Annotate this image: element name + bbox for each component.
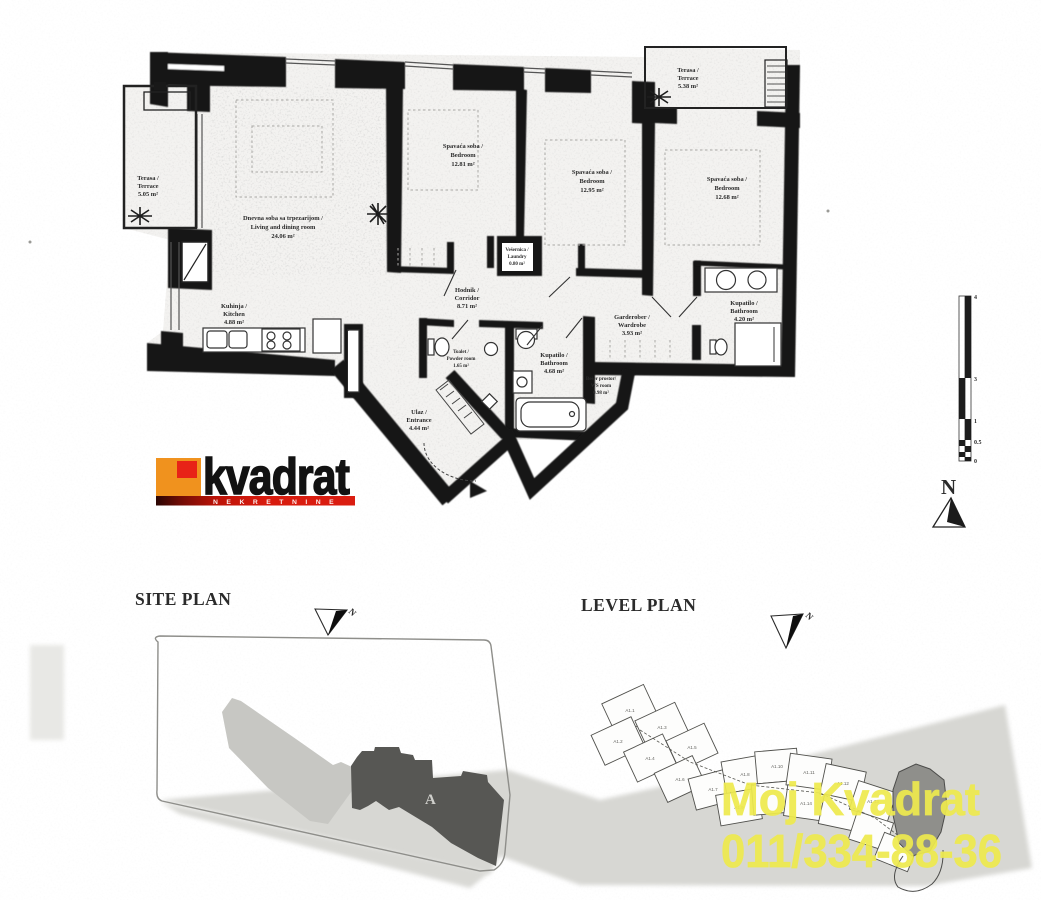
svg-text:Spavaća soba /: Spavaća soba / xyxy=(572,169,612,176)
svg-text:4.68 m²: 4.68 m² xyxy=(544,368,564,375)
svg-text:SITE PLAN: SITE PLAN xyxy=(135,589,231,609)
svg-text:Garderober /: Garderober / xyxy=(614,314,650,321)
svg-text:Ulaz /: Ulaz / xyxy=(411,409,427,416)
svg-text:Powder room: Powder room xyxy=(447,357,477,362)
svg-text:24.06 m²: 24.06 m² xyxy=(271,233,294,240)
svg-text:4.88 m²: 4.88 m² xyxy=(224,319,244,326)
svg-text:Kupatilo /: Kupatilo / xyxy=(730,300,758,307)
svg-text:4: 4 xyxy=(974,295,977,301)
svg-text:Corridor: Corridor xyxy=(455,295,480,302)
svg-text:N: N xyxy=(941,475,956,499)
svg-text:Spavaća soba /: Spavaća soba / xyxy=(707,176,747,183)
svg-text:12.68 m²: 12.68 m² xyxy=(715,194,738,201)
svg-text:5.05 m²: 5.05 m² xyxy=(138,191,158,198)
svg-text:A1.7: A1.7 xyxy=(708,787,718,792)
svg-text:A1.1: A1.1 xyxy=(625,708,635,713)
svg-text:A1.5: A1.5 xyxy=(687,745,697,750)
svg-text:Moj Kvadrat: Moj Kvadrat xyxy=(721,773,980,825)
svg-text:A1.2: A1.2 xyxy=(613,739,623,744)
svg-text:WS room: WS room xyxy=(591,384,612,389)
svg-text:Terrace: Terrace xyxy=(677,75,698,82)
svg-text:A1.6: A1.6 xyxy=(675,777,685,782)
svg-text:0.5: 0.5 xyxy=(974,440,982,446)
svg-text:Hodnik /: Hodnik / xyxy=(455,287,479,294)
svg-text:011/334-88-36: 011/334-88-36 xyxy=(721,825,1002,877)
svg-text:0.80 m²: 0.80 m² xyxy=(509,261,525,267)
svg-text:Kupatilo /: Kupatilo / xyxy=(540,352,568,359)
svg-text:Bedroom: Bedroom xyxy=(579,178,605,185)
svg-text:Kitchen: Kitchen xyxy=(223,311,245,318)
svg-text:Bedroom: Bedroom xyxy=(450,152,476,159)
svg-text:Laundry: Laundry xyxy=(508,255,527,260)
svg-text:Toalet /: Toalet / xyxy=(453,350,469,355)
svg-text:Bathroom: Bathroom xyxy=(730,308,758,315)
svg-text:A1.10: A1.10 xyxy=(771,764,783,769)
svg-text:Entrance: Entrance xyxy=(406,417,431,424)
svg-text:Living and dining room: Living and dining room xyxy=(251,224,316,231)
svg-text:Wardrobe: Wardrobe xyxy=(618,322,646,329)
svg-text:LEVEL PLAN: LEVEL PLAN xyxy=(581,595,696,615)
svg-text:5.38 m²: 5.38 m² xyxy=(678,83,698,90)
svg-text:Kuhinja /: Kuhinja / xyxy=(221,303,247,310)
svg-text:Terrace: Terrace xyxy=(137,183,158,190)
svg-text:12.95 m²: 12.95 m² xyxy=(580,187,603,194)
svg-text:1.65 m²: 1.65 m² xyxy=(453,363,469,369)
svg-text:Bathroom: Bathroom xyxy=(540,360,568,367)
svg-text:0.98 m²: 0.98 m² xyxy=(593,390,609,396)
svg-text:0: 0 xyxy=(974,459,977,465)
svg-text:8.71 m²: 8.71 m² xyxy=(457,303,477,310)
svg-text:3.93 m²: 3.93 m² xyxy=(622,330,642,337)
svg-text:Terasa /: Terasa / xyxy=(137,175,159,182)
svg-text:1: 1 xyxy=(974,419,977,425)
svg-text:A1.3: A1.3 xyxy=(657,725,667,730)
svg-text:12.81 m²: 12.81 m² xyxy=(451,161,474,168)
svg-text:NEKRETNINE: NEKRETNINE xyxy=(213,499,342,506)
svg-text:Vešernica /: Vešernica / xyxy=(505,248,529,253)
svg-text:Spavaća soba /: Spavaća soba / xyxy=(443,143,483,150)
svg-text:Terasa /: Terasa / xyxy=(677,67,699,74)
svg-text:A: A xyxy=(425,792,436,808)
svg-text:A1.4: A1.4 xyxy=(645,756,655,761)
svg-text:Bedroom: Bedroom xyxy=(714,185,740,192)
svg-text:4.20 m²: 4.20 m² xyxy=(734,316,754,323)
svg-text:Bešer prostor/: Bešer prostor/ xyxy=(586,377,617,382)
svg-text:4.44 m²: 4.44 m² xyxy=(409,425,429,432)
svg-text:Dnevna soba sa trpezarijom /: Dnevna soba sa trpezarijom / xyxy=(243,215,323,222)
svg-text:3: 3 xyxy=(974,377,977,383)
